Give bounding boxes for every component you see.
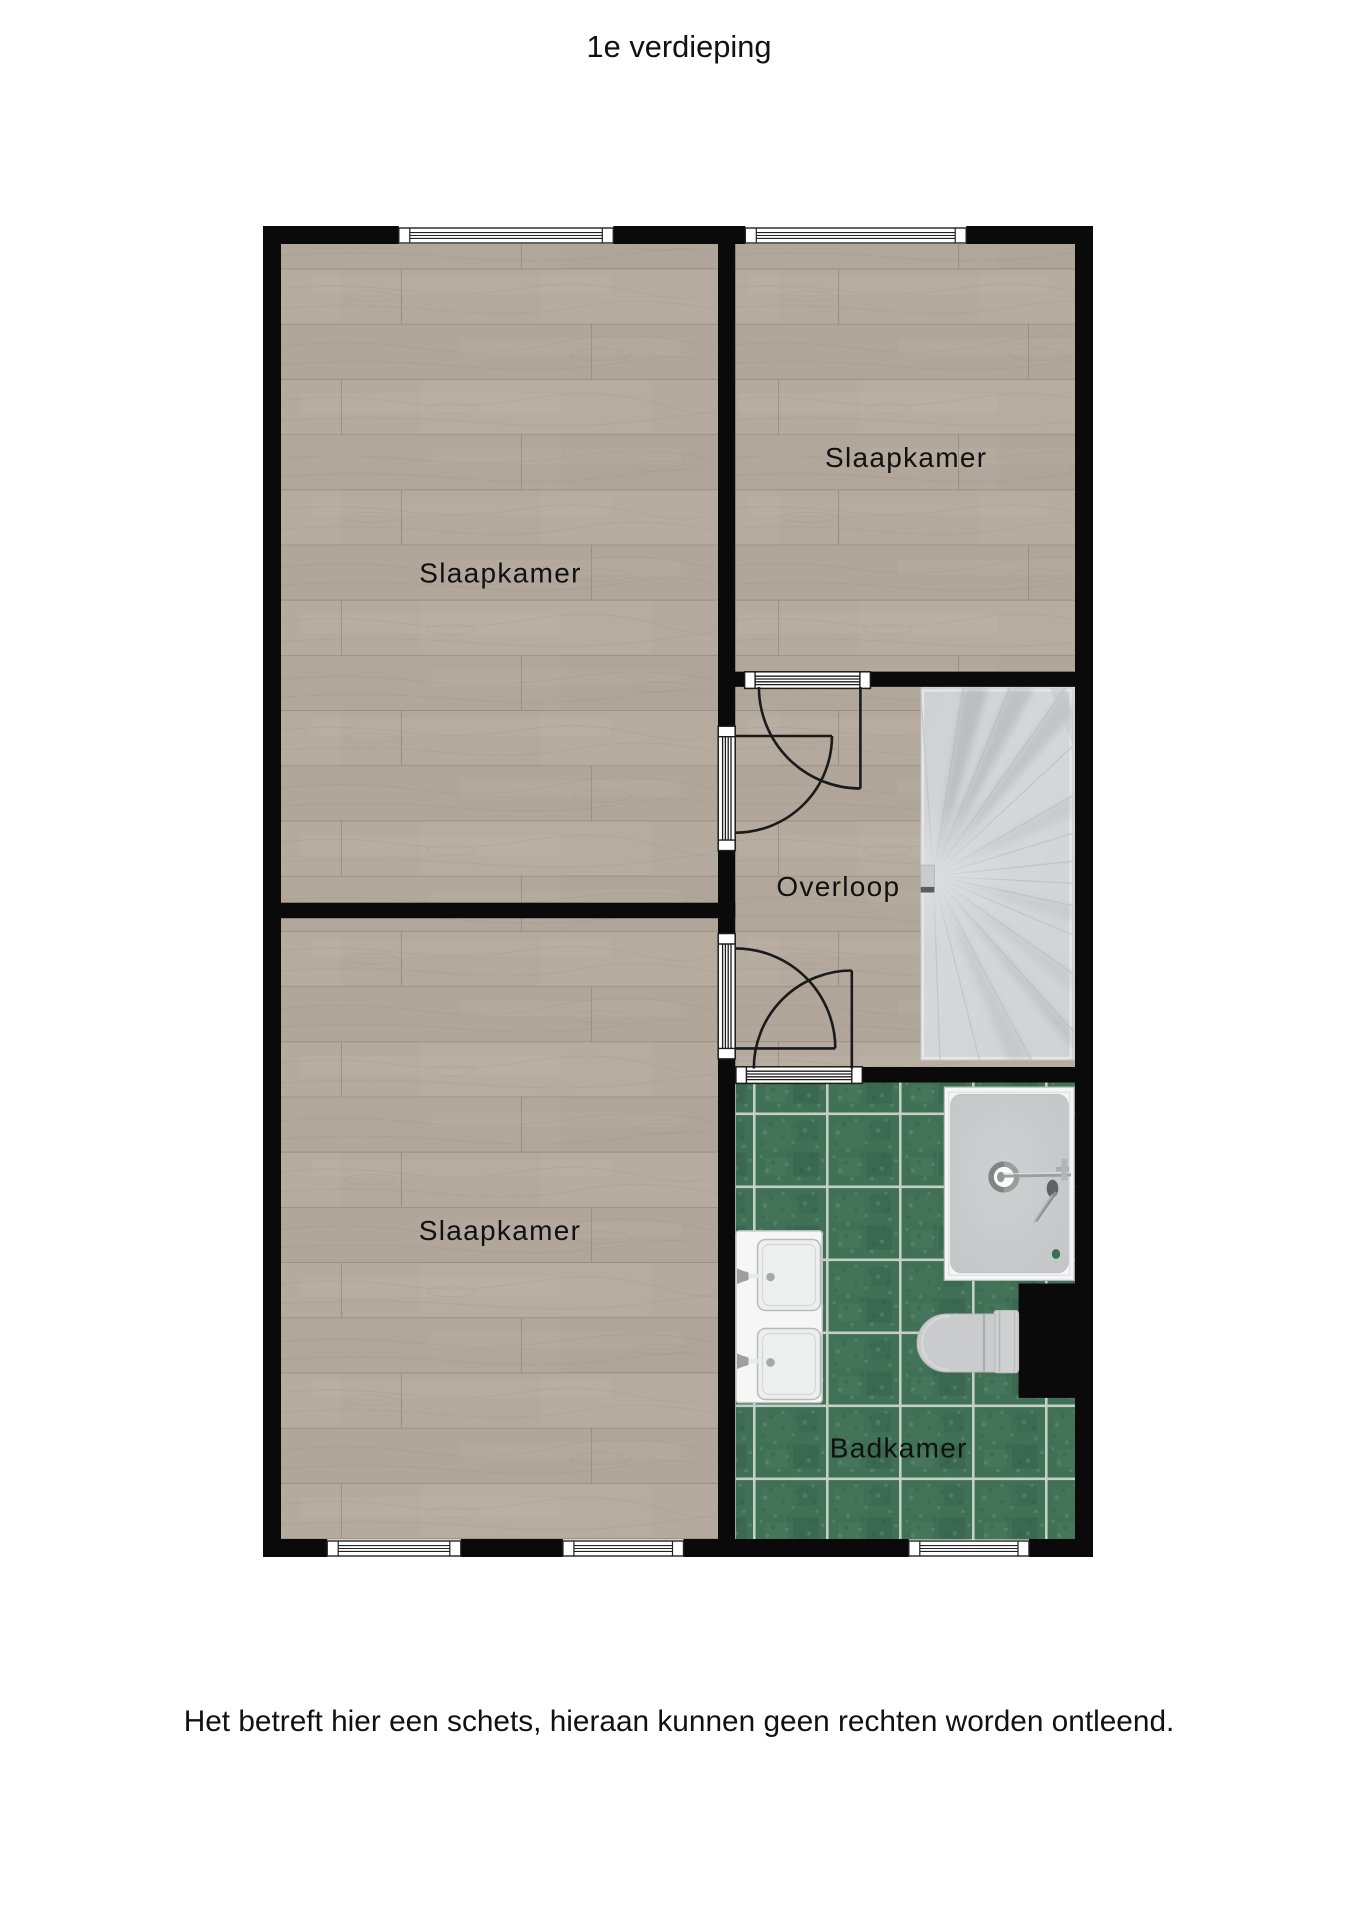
svg-text:Badkamer: Badkamer [830,1433,968,1464]
svg-text:Slaapkamer: Slaapkamer [419,558,581,589]
svg-text:Slaapkamer: Slaapkamer [419,1215,581,1246]
svg-text:1e verdieping: 1e verdieping [587,29,772,64]
svg-text:Slaapkamer: Slaapkamer [825,442,987,473]
svg-text:Het betreft hier een schets, h: Het betreft hier een schets, hieraan kun… [184,1705,1175,1738]
svg-text:Overloop: Overloop [776,871,900,902]
